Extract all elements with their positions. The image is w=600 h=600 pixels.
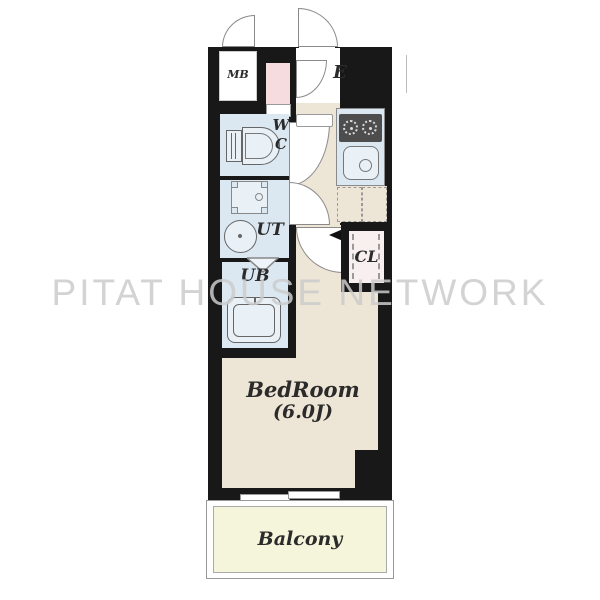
boundary-line: [406, 55, 407, 93]
toilet-label: W C: [272, 116, 290, 154]
appliance-space-left: [337, 187, 362, 222]
balcony-label: Balcony: [213, 528, 387, 550]
corner-pillar: [355, 450, 392, 502]
sliding-window-right: [288, 491, 340, 499]
entrance-exterior-door-arc: [298, 8, 338, 47]
entrance-label: E: [330, 62, 350, 83]
kitchen-sink-icon: [343, 146, 379, 180]
entrance-step: [296, 114, 333, 127]
bedroom-label: BedRoom (6.0J): [228, 378, 378, 424]
stove-icon: [339, 114, 382, 142]
appliance-space-right: [362, 187, 387, 222]
pipe-space-box: [266, 63, 290, 104]
watermark-text: PITAT HOUSE NETWORK: [0, 272, 600, 314]
utility-label: UT: [250, 220, 290, 240]
closet-label: CL: [349, 247, 384, 266]
meter-box-door-arc: [222, 15, 255, 47]
toilet-tank-icon: [226, 130, 242, 162]
washbasin-icon: [231, 181, 268, 214]
meter-box-label: MB: [219, 68, 257, 81]
